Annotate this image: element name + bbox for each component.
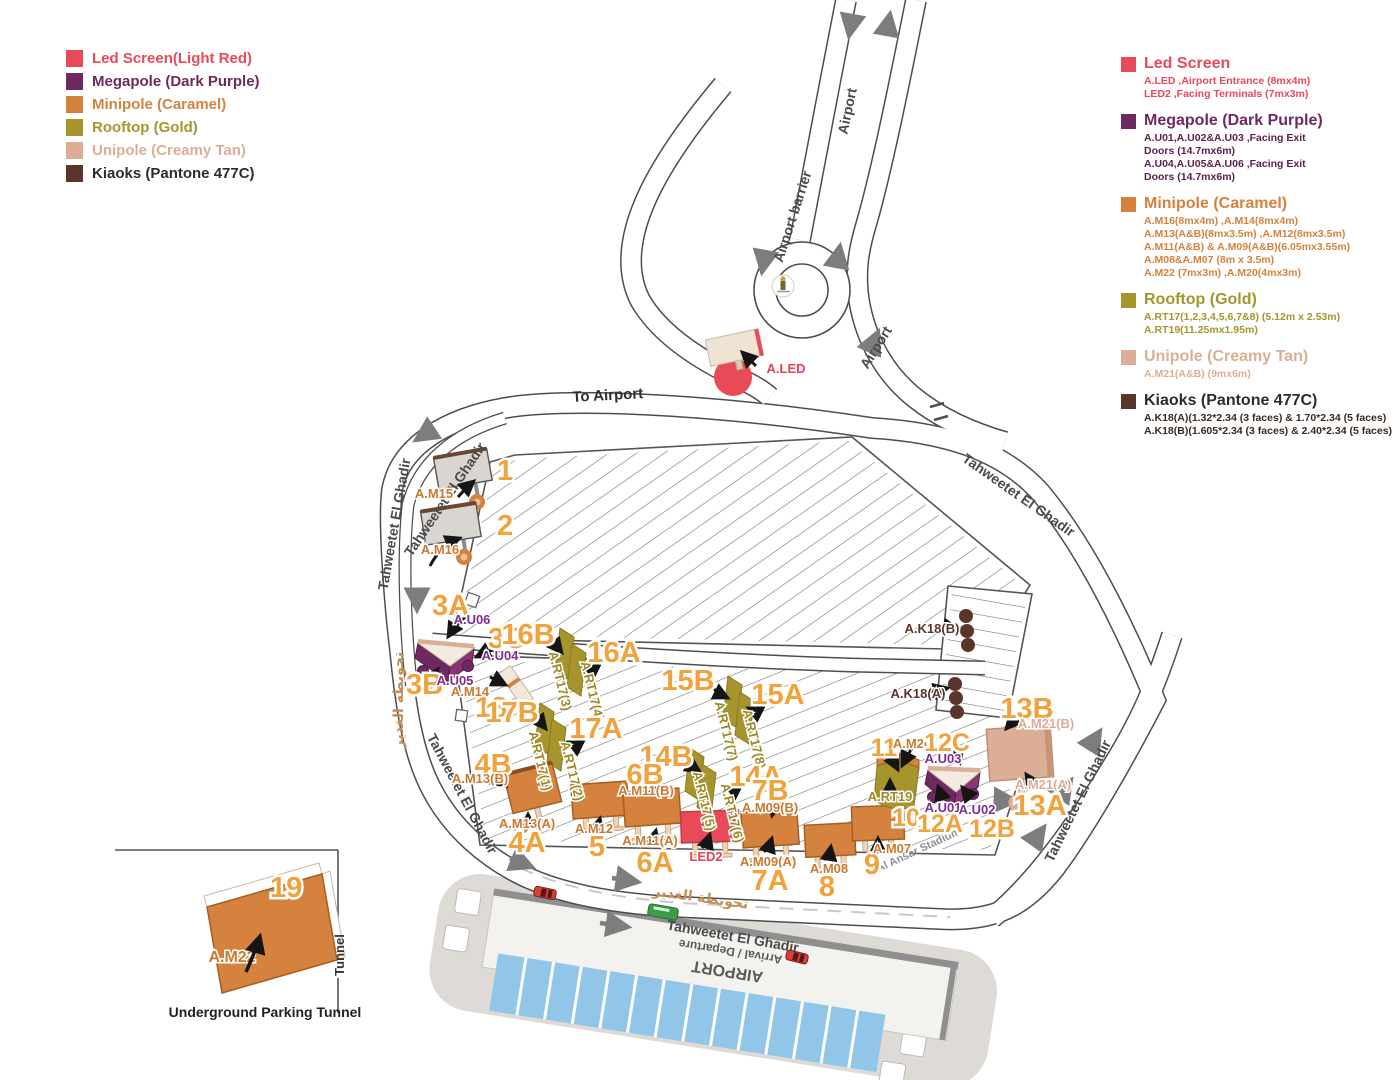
kiaoks-swatch — [66, 165, 83, 182]
legend-right: Led Screen A.LED ,Airport Entrance (8mx4… — [1121, 55, 1393, 449]
legend-line: Doors (14.7mx6m) — [1144, 171, 1393, 184]
airport-advertising-map: Arrival / Departure AIRPORT — [0, 0, 1400, 1080]
marker-num-16b: 16B — [501, 619, 554, 651]
unipole-swatch — [66, 142, 83, 159]
terminal-structure — [878, 1061, 905, 1080]
legend-line: A.K18(B)(1.605*2.34 (3 faces) & 2.40*2.3… — [1144, 425, 1393, 438]
led-screen-swatch — [66, 50, 83, 67]
marker-num-15a: 15A — [751, 679, 804, 711]
legend-line: A.K18(A)(1.32*2.34 (3 faces) & 1.70*2.34… — [1144, 412, 1393, 425]
marker-num-4a: 4A — [508, 827, 545, 859]
legend-section-rooftop: Rooftop (Gold) A.RT17(1,2,3,4,5,6,7&8) (… — [1121, 291, 1393, 337]
marker-code-am14: A.M14 — [451, 684, 490, 699]
legend-label: Kiaoks (Pantone 477C) — [92, 165, 255, 182]
led-screen-swatch — [1121, 57, 1136, 72]
rooftop-swatch — [66, 119, 83, 136]
legend-line: A.M13(A&B)(8mx3.5m) ,A.M12(8mx3.5m) — [1144, 228, 1393, 241]
legend-line: A.M08&A.M07 (8m x 3.5m) — [1144, 254, 1393, 267]
guard-icon — [772, 275, 794, 297]
legend-title: Megapole (Dark Purple) — [1144, 112, 1323, 130]
marker-code-am21b: A.M21(B) — [1018, 716, 1074, 731]
minipole-swatch — [1121, 197, 1136, 212]
legend-title: Kiaoks (Pantone 477C) — [1144, 392, 1317, 410]
legend-title: Minipole (Caramel) — [1144, 195, 1287, 213]
megapole-swatch — [66, 73, 83, 90]
legend-item-led-screen: Led Screen(Light Red) — [66, 50, 260, 67]
legend-label: Rooftop (Gold) — [92, 119, 198, 136]
marker-num-7a: 7A — [751, 865, 788, 897]
legend-line: A.RT17(1,2,3,4,5,6,7&8) (5.12m x 2.53m) — [1144, 311, 1393, 324]
legend-item-unipole: Unipole (Creamy Tan) — [66, 142, 260, 159]
legend-title: Rooftop (Gold) — [1144, 291, 1257, 309]
kiosks-a-k18a — [948, 677, 964, 719]
marker-code-ak18a: A.K18(A) — [891, 686, 946, 701]
tunnel-num-19: 19 — [270, 872, 302, 904]
marker-code-au06: A.U06 — [454, 612, 491, 627]
legend-line: A.LED ,Airport Entrance (8mx4m) — [1144, 75, 1393, 88]
tunnel-side-label: Tunnel — [332, 934, 347, 976]
legend-item-megapole: Megapole (Dark Purple) — [66, 73, 260, 90]
tunnel-caption: Underground Parking Tunnel — [169, 1004, 362, 1020]
marker-code-aled: A.LED — [767, 361, 806, 376]
marker-code-ak18b: A.K18(B) — [905, 621, 960, 636]
rooftop-swatch — [1121, 293, 1136, 308]
legend-item-kiaoks: Kiaoks (Pantone 477C) — [66, 165, 260, 182]
marker-code-au03: A.U03 — [925, 751, 962, 766]
marker-code-rt19: A.RT19 — [868, 789, 913, 804]
legend-line: A.RT19(11.25mx1.95m) — [1144, 324, 1393, 337]
marker-code-led2: LED2 — [689, 849, 722, 864]
parking-structure — [455, 709, 467, 721]
legend-item-rooftop: Rooftop (Gold) — [66, 119, 260, 136]
marker-num-15b: 15B — [661, 665, 714, 697]
legend-line: LED2 ,Facing Terminals (7mx3m) — [1144, 88, 1393, 101]
marker-num-16a: 16A — [587, 637, 640, 669]
legend-section-minipole: Minipole (Caramel) A.M16(8mx4m) ,A.M14(8… — [1121, 195, 1393, 280]
legend-line: Doors (14.7mx6m) — [1144, 145, 1393, 158]
marker-code-am09b: A.M09(B) — [742, 800, 798, 815]
marker-code-am08: A.M08 — [810, 861, 848, 876]
marker-code-am15: A.M15 — [415, 486, 453, 501]
parking-upper-stalls — [457, 441, 1024, 646]
legend-section-led-screen: Led Screen A.LED ,Airport Entrance (8mx4… — [1121, 55, 1393, 101]
marker-num-17a: 17A — [569, 713, 622, 745]
unipole-swatch — [1121, 350, 1136, 365]
marker-num-17b: 17B — [485, 697, 538, 729]
marker-num-6a: 6A — [636, 847, 673, 879]
megapole-swatch — [1121, 114, 1136, 129]
legend-line: A.U01,A.U02&A.U03 ,Facing Exit — [1144, 132, 1393, 145]
legend-title: Unipole (Creamy Tan) — [1144, 348, 1308, 366]
marker-num-12b: 12B — [969, 815, 1015, 843]
terminal-structure — [454, 888, 481, 915]
legend-section-megapole: Megapole (Dark Purple) A.U01,A.U02&A.U03… — [1121, 112, 1393, 184]
marker-code-am11b: A.M11(B) — [618, 783, 674, 798]
marker-num-1: 1 — [497, 455, 513, 487]
legend-line: A.M11(A&B) & A.M09(A&B)(6.05mx3.55m) — [1144, 241, 1393, 254]
marker-code-am16: A.M16 — [421, 542, 459, 557]
legend-line: A.M16(8mx4m) ,A.M14(8mx4m) — [1144, 215, 1393, 228]
marker-num-12a: 12A — [917, 810, 963, 838]
road-highway-right — [857, 0, 1005, 442]
marker-num-10: 10 — [892, 804, 920, 832]
legend-item-minipole: Minipole (Caramel) — [66, 96, 260, 113]
legend-section-unipole: Unipole (Creamy Tan) A.M21(A&B) (9mx6m) — [1121, 348, 1393, 381]
legend-label: Minipole (Caramel) — [92, 96, 226, 113]
marker-code-am11a: A.M11(A) — [622, 833, 678, 848]
marker-code-am07: A.M07 — [873, 841, 911, 856]
legend-label: Megapole (Dark Purple) — [92, 73, 260, 90]
marker-code-am12: A.M12 — [575, 821, 613, 836]
legend-label: Led Screen(Light Red) — [92, 50, 252, 67]
minipole-swatch — [66, 96, 83, 113]
kiosks-a-k18b — [959, 609, 975, 652]
legend-left: Led Screen(Light Red) Megapole (Dark Pur… — [66, 50, 260, 188]
legend-line: A.U04,A.U05&A.U06 ,Facing Exit — [1144, 158, 1393, 171]
legend-section-kiaoks: Kiaoks (Pantone 477C) A.K18(A)(1.32*2.34… — [1121, 392, 1393, 438]
kiaoks-swatch — [1121, 394, 1136, 409]
legend-title: Led Screen — [1144, 55, 1230, 73]
terminal-structure — [442, 925, 469, 952]
marker-code-am13b: A.M13(B) — [452, 771, 508, 786]
legend-line: A.M21(A&B) (9mx6m) — [1144, 368, 1393, 381]
marker-num-2: 2 — [497, 510, 513, 542]
road-label-arabic-left: تحويطة الغدير — [391, 652, 407, 749]
legend-line: A.M22 (7mx3m) ,A.M20(4mx3m) — [1144, 267, 1393, 280]
tunnel-inset: 19 A.M22 Tunnel Underground Parking Tunn… — [115, 850, 361, 1020]
marker-num-13a: 13A — [1013, 790, 1066, 822]
legend-label: Unipole (Creamy Tan) — [92, 142, 246, 159]
